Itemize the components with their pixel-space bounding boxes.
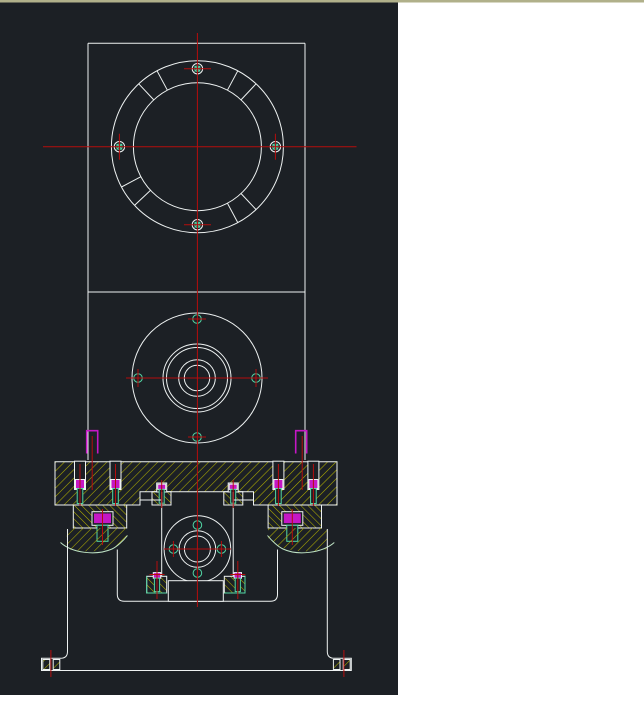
- cad-page: [0, 0, 644, 710]
- top-border-line: [0, 0, 644, 3]
- cad-drawing-canvas[interactable]: [0, 0, 644, 710]
- pedestal-base-block: [168, 581, 223, 602]
- anchor-pad: [224, 576, 245, 593]
- foot-pad: [53, 660, 60, 670]
- foot-pad: [43, 660, 50, 670]
- foot-pad: [333, 660, 340, 670]
- drawing-geometry: [0, 0, 644, 695]
